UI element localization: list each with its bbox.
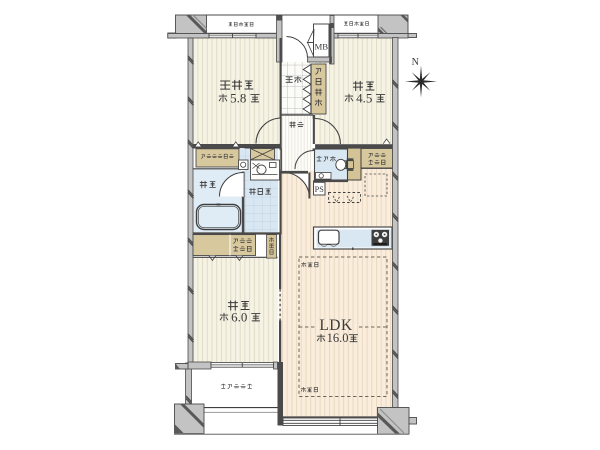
svg-text:5.8: 5.8 xyxy=(230,90,246,105)
svg-text:MB: MB xyxy=(314,42,328,52)
svg-text:N: N xyxy=(412,57,419,68)
svg-text:16.0: 16.0 xyxy=(327,331,349,345)
svg-text:6.0: 6.0 xyxy=(231,309,247,324)
svg-text:PS: PS xyxy=(315,185,325,194)
svg-text:4.5: 4.5 xyxy=(356,90,372,105)
